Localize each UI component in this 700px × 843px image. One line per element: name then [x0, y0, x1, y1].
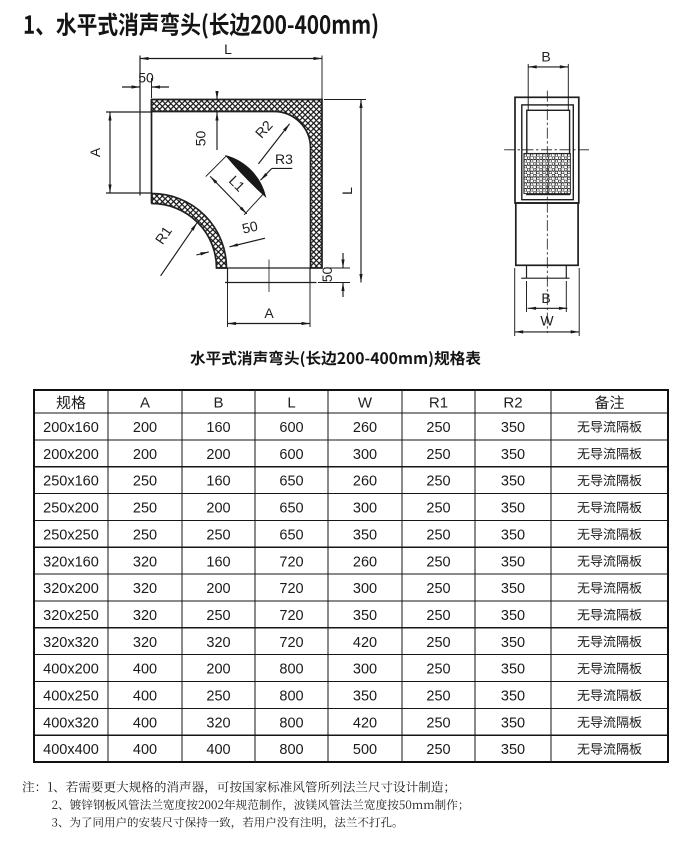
svg-text:250: 250 [133, 501, 157, 517]
svg-text:800: 800 [279, 715, 303, 731]
svg-text:R1: R1 [429, 395, 448, 412]
svg-text:420: 420 [353, 635, 377, 651]
svg-text:300: 300 [353, 581, 377, 597]
svg-text:300: 300 [353, 447, 377, 463]
svg-text:250: 250 [426, 501, 450, 517]
svg-text:350: 350 [501, 742, 525, 758]
svg-text:50: 50 [319, 267, 335, 283]
svg-text:R2: R2 [252, 117, 276, 141]
svg-text:400x320: 400x320 [43, 715, 99, 731]
svg-text:200: 200 [206, 662, 230, 678]
svg-text:320: 320 [206, 635, 230, 651]
svg-text:250: 250 [426, 447, 450, 463]
svg-text:400x200: 400x200 [43, 662, 99, 678]
svg-text:350: 350 [501, 474, 525, 490]
svg-text:500: 500 [353, 742, 377, 758]
svg-text:R3: R3 [275, 151, 293, 167]
svg-text:250: 250 [426, 635, 450, 651]
svg-text:W: W [358, 395, 373, 412]
svg-text:350: 350 [501, 501, 525, 517]
svg-text:250: 250 [426, 662, 450, 678]
svg-text:320: 320 [133, 635, 157, 651]
svg-text:720: 720 [279, 554, 303, 570]
svg-text:350: 350 [501, 662, 525, 678]
svg-text:350: 350 [501, 715, 525, 731]
svg-text:350: 350 [353, 527, 377, 543]
svg-text:200: 200 [206, 501, 230, 517]
svg-text:320x200: 320x200 [43, 581, 99, 597]
svg-text:300: 300 [353, 501, 377, 517]
svg-text:250: 250 [426, 689, 450, 705]
svg-text:800: 800 [279, 662, 303, 678]
svg-text:250: 250 [133, 527, 157, 543]
svg-text:800: 800 [279, 689, 303, 705]
svg-text:350: 350 [501, 447, 525, 463]
svg-text:320: 320 [206, 715, 230, 731]
svg-text:800: 800 [279, 742, 303, 758]
svg-text:300: 300 [353, 662, 377, 678]
svg-text:650: 650 [279, 501, 303, 517]
svg-text:200x160: 200x160 [43, 420, 99, 436]
svg-text:R1: R1 [152, 223, 175, 247]
svg-text:400: 400 [133, 662, 157, 678]
svg-text:250: 250 [206, 527, 230, 543]
svg-text:600: 600 [279, 420, 303, 436]
svg-text:A: A [264, 305, 274, 321]
svg-text:420: 420 [353, 715, 377, 731]
svg-text:260: 260 [353, 420, 377, 436]
svg-text:250x160: 250x160 [43, 474, 99, 490]
svg-text:320: 320 [133, 581, 157, 597]
svg-text:50: 50 [240, 218, 259, 237]
svg-text:W: W [540, 313, 554, 329]
svg-text:250: 250 [426, 608, 450, 624]
svg-text:350: 350 [501, 581, 525, 597]
svg-text:160: 160 [206, 474, 230, 490]
svg-text:250x250: 250x250 [43, 527, 99, 543]
svg-text:260: 260 [353, 474, 377, 490]
svg-text:50: 50 [193, 131, 209, 147]
svg-text:250: 250 [426, 420, 450, 436]
svg-text:50: 50 [138, 70, 154, 86]
svg-text:B: B [541, 49, 550, 65]
svg-text:250: 250 [426, 715, 450, 731]
svg-text:400x400: 400x400 [43, 742, 99, 758]
svg-text:400: 400 [133, 689, 157, 705]
svg-text:B: B [541, 290, 550, 306]
svg-text:250: 250 [426, 474, 450, 490]
svg-text:200: 200 [206, 581, 230, 597]
svg-text:L: L [224, 41, 232, 57]
svg-text:320x250: 320x250 [43, 608, 99, 624]
svg-text:720: 720 [279, 635, 303, 651]
svg-text:250: 250 [133, 474, 157, 490]
svg-text:250: 250 [206, 608, 230, 624]
svg-text:350: 350 [501, 420, 525, 436]
svg-text:400x250: 400x250 [43, 689, 99, 705]
svg-text:L: L [339, 187, 355, 195]
svg-text:650: 650 [279, 474, 303, 490]
svg-text:350: 350 [353, 689, 377, 705]
svg-text:A: A [87, 147, 103, 157]
svg-text:200: 200 [133, 420, 157, 436]
svg-text:650: 650 [279, 527, 303, 543]
svg-text:350: 350 [501, 635, 525, 651]
svg-text:250: 250 [426, 742, 450, 758]
svg-text:400: 400 [206, 742, 230, 758]
svg-text:250: 250 [426, 554, 450, 570]
svg-text:R2: R2 [503, 395, 522, 412]
svg-text:250: 250 [206, 689, 230, 705]
svg-text:L: L [287, 395, 295, 412]
svg-text:350: 350 [501, 527, 525, 543]
svg-text:720: 720 [279, 608, 303, 624]
svg-text:A: A [140, 395, 150, 412]
svg-text:250x200: 250x200 [43, 501, 99, 517]
svg-text:160: 160 [206, 420, 230, 436]
svg-text:250: 250 [426, 581, 450, 597]
svg-text:200x200: 200x200 [43, 447, 99, 463]
svg-text:160: 160 [206, 554, 230, 570]
svg-text:350: 350 [501, 689, 525, 705]
svg-text:350: 350 [501, 608, 525, 624]
svg-text:260: 260 [353, 554, 377, 570]
svg-text:320: 320 [133, 554, 157, 570]
svg-text:320x320: 320x320 [43, 635, 99, 651]
svg-text:320x160: 320x160 [43, 554, 99, 570]
svg-text:350: 350 [501, 554, 525, 570]
svg-text:600: 600 [279, 447, 303, 463]
svg-text:200: 200 [206, 447, 230, 463]
svg-text:320: 320 [133, 608, 157, 624]
svg-text:720: 720 [279, 581, 303, 597]
svg-text:350: 350 [353, 608, 377, 624]
svg-text:400: 400 [133, 715, 157, 731]
svg-text:200: 200 [133, 447, 157, 463]
svg-text:250: 250 [426, 527, 450, 543]
svg-text:400: 400 [133, 742, 157, 758]
svg-text:B: B [213, 395, 223, 412]
